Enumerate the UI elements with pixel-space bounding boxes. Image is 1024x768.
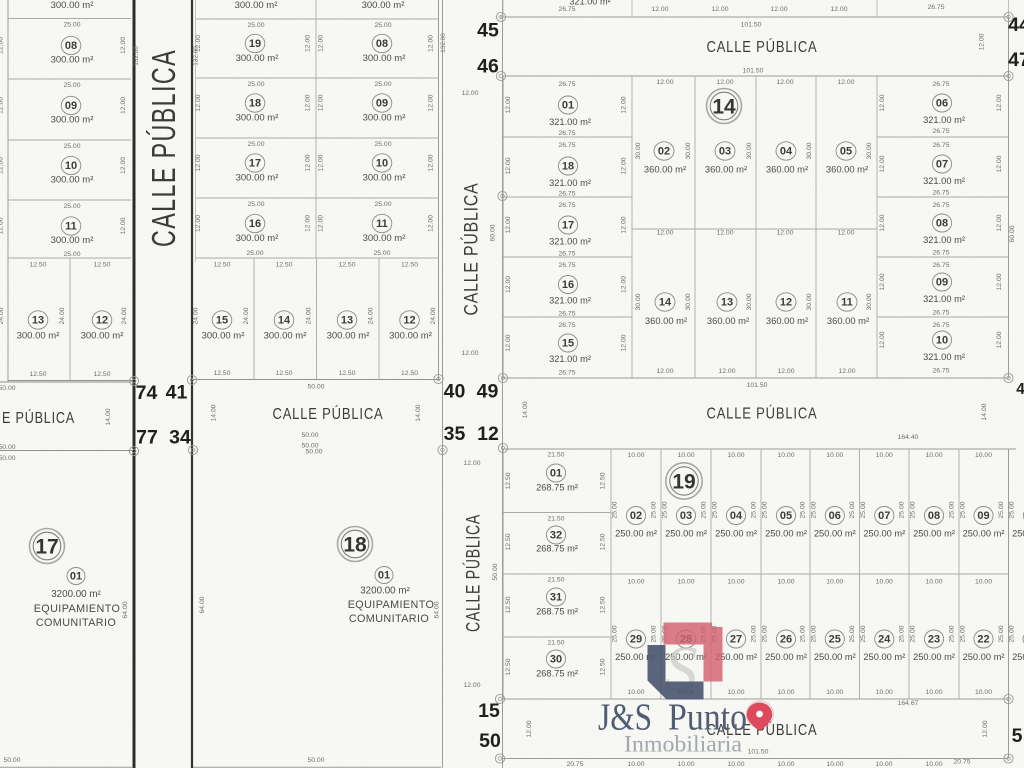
svg-text:22: 22	[977, 634, 989, 646]
svg-text:250.00 m²: 250.00 m²	[814, 652, 856, 662]
svg-text:CALLE PÚBLICA: CALLE PÚBLICA	[707, 37, 818, 56]
svg-text:15: 15	[216, 315, 228, 327]
svg-text:64.00: 64.00	[199, 596, 206, 613]
svg-text:08: 08	[376, 38, 388, 50]
svg-text:60.00: 60.00	[490, 224, 497, 241]
svg-text:06: 06	[936, 98, 948, 110]
svg-text:164.40: 164.40	[898, 434, 919, 441]
svg-text:09: 09	[977, 510, 989, 522]
svg-text:300.00 m²: 300.00 m²	[389, 331, 432, 342]
svg-text:268.75 m²: 268.75 m²	[536, 483, 578, 493]
svg-text:01: 01	[562, 100, 574, 112]
svg-text:40: 40	[444, 381, 466, 403]
svg-text:26.75: 26.75	[558, 142, 575, 149]
svg-text:18: 18	[343, 533, 367, 556]
svg-text:300.00 m²: 300.00 m²	[363, 53, 406, 64]
svg-text:164.67: 164.67	[898, 700, 919, 707]
svg-text:25.00: 25.00	[811, 625, 818, 642]
svg-text:12.00: 12.00	[879, 331, 886, 348]
svg-text:26.75: 26.75	[932, 128, 949, 135]
svg-text:10.00: 10.00	[875, 761, 892, 768]
svg-text:12.50: 12.50	[505, 533, 512, 550]
svg-text:25.00: 25.00	[1009, 625, 1016, 642]
svg-text:300.00 m²: 300.00 m²	[236, 233, 279, 244]
svg-text:25.00: 25.00	[899, 625, 906, 642]
svg-text:25: 25	[829, 634, 841, 646]
svg-text:26.75: 26.75	[932, 202, 949, 209]
svg-text:12.00: 12.00	[996, 155, 1003, 172]
svg-text:12.50: 12.50	[275, 262, 292, 269]
svg-text:12.50: 12.50	[29, 262, 46, 269]
svg-text:16: 16	[562, 279, 574, 291]
svg-text:12.00: 12.00	[711, 6, 728, 13]
svg-text:25.00: 25.00	[960, 501, 967, 518]
svg-text:32: 32	[550, 530, 562, 542]
svg-text:01: 01	[70, 571, 82, 583]
svg-text:12.50: 12.50	[29, 371, 46, 378]
svg-text:300.00 m²: 300.00 m²	[236, 173, 279, 184]
svg-text:24.00: 24.00	[59, 307, 66, 324]
svg-text:30: 30	[550, 654, 562, 666]
svg-text:02: 02	[658, 146, 670, 158]
svg-text:25.00: 25.00	[247, 22, 264, 29]
svg-text:12.00: 12.00	[463, 682, 480, 689]
svg-text:50: 50	[479, 730, 501, 752]
svg-text:10.00: 10.00	[826, 452, 843, 459]
svg-text:24.00: 24.00	[368, 307, 375, 324]
svg-text:26.75: 26.75	[932, 81, 949, 88]
svg-text:12: 12	[477, 423, 499, 445]
svg-text:360.00 m²: 360.00 m²	[766, 315, 808, 326]
svg-text:09: 09	[376, 98, 388, 110]
svg-text:360.00 m²: 360.00 m²	[645, 315, 687, 326]
svg-text:25.00: 25.00	[949, 501, 956, 518]
svg-text:10.00: 10.00	[727, 761, 744, 768]
svg-text:50.00: 50.00	[0, 444, 16, 451]
svg-text:12.00: 12.00	[318, 154, 325, 171]
svg-text:12.00: 12.00	[879, 273, 886, 290]
svg-text:50.00: 50.00	[307, 757, 324, 764]
svg-text:10.00: 10.00	[826, 761, 843, 768]
svg-text:321.00 m²: 321.00 m²	[923, 115, 965, 125]
svg-text:300.00 m²: 300.00 m²	[235, 0, 278, 11]
svg-text:25.00: 25.00	[800, 625, 807, 642]
svg-text:12.50: 12.50	[600, 533, 607, 550]
svg-text:300.00 m²: 300.00 m²	[51, 115, 94, 126]
svg-text:300.00 m²: 300.00 m²	[327, 331, 370, 342]
svg-text:26.75: 26.75	[558, 322, 575, 329]
svg-text:360.00 m²: 360.00 m²	[644, 164, 686, 175]
svg-text:12.00: 12.00	[982, 720, 989, 737]
svg-text:12.00: 12.00	[838, 368, 855, 375]
svg-text:12.00: 12.00	[879, 214, 886, 231]
svg-text:12.00: 12.00	[656, 368, 673, 375]
svg-text:14.00: 14.00	[415, 404, 422, 421]
svg-text:25.00: 25.00	[651, 625, 658, 642]
svg-text:05: 05	[840, 146, 852, 158]
svg-text:250.00 m²: 250.00 m²	[814, 529, 856, 539]
svg-text:25.00: 25.00	[712, 501, 719, 518]
svg-text:50.00: 50.00	[301, 432, 318, 439]
svg-text:10.00: 10.00	[876, 689, 893, 696]
svg-text:12.00: 12.00	[428, 35, 435, 52]
svg-text:12.50: 12.50	[93, 262, 110, 269]
svg-text:12.00: 12.00	[837, 79, 854, 86]
svg-text:25.00: 25.00	[751, 501, 758, 518]
svg-text:12.00: 12.00	[0, 217, 5, 234]
svg-text:30.00: 30.00	[685, 293, 692, 310]
svg-text:12.50: 12.50	[213, 370, 230, 377]
svg-text:12.00: 12.00	[0, 97, 5, 114]
svg-text:25.00: 25.00	[246, 250, 263, 257]
svg-text:03: 03	[680, 510, 692, 522]
svg-text:10.00: 10.00	[677, 761, 694, 768]
svg-text:25.00: 25.00	[849, 501, 856, 518]
svg-text:12.50: 12.50	[600, 472, 607, 489]
svg-text:12.50: 12.50	[401, 262, 418, 269]
svg-text:250.00 m²: 250.00 m²	[863, 529, 905, 539]
svg-text:26.75: 26.75	[558, 191, 575, 198]
svg-text:321.00 m²: 321.00 m²	[923, 176, 965, 186]
svg-text:360.00 m²: 360.00 m²	[827, 315, 869, 326]
svg-text:10.00: 10.00	[777, 761, 794, 768]
svg-text:50.00: 50.00	[307, 384, 324, 391]
svg-text:300.00 m²: 300.00 m²	[362, 0, 405, 11]
svg-text:10.00: 10.00	[627, 452, 644, 459]
svg-text:300.00 m²: 300.00 m²	[17, 331, 60, 342]
svg-text:12.00: 12.00	[428, 154, 435, 171]
svg-text:49: 49	[477, 381, 499, 403]
svg-text:25.00: 25.00	[751, 625, 758, 642]
svg-text:250.00 m²: 250.00 m²	[615, 529, 657, 539]
svg-text:25.00: 25.00	[998, 625, 1005, 642]
svg-text:01: 01	[550, 468, 562, 480]
svg-text:26.75: 26.75	[932, 262, 949, 269]
svg-text:12.00: 12.00	[461, 350, 478, 357]
svg-text:25.00: 25.00	[247, 201, 264, 208]
svg-text:25.00: 25.00	[662, 501, 669, 518]
svg-text:12.00: 12.00	[505, 216, 512, 233]
svg-text:10: 10	[376, 158, 388, 170]
svg-text:268.75 m²: 268.75 m²	[536, 669, 578, 679]
svg-text:50.00: 50.00	[0, 385, 16, 392]
svg-text:250.00 m²: 250.00 m²	[963, 652, 1005, 662]
svg-text:29: 29	[630, 634, 642, 646]
svg-text:10.00: 10.00	[727, 452, 744, 459]
svg-text:21.50: 21.50	[547, 516, 564, 523]
svg-text:41: 41	[166, 382, 188, 404]
svg-text:10.00: 10.00	[925, 452, 942, 459]
svg-text:14.00: 14.00	[105, 408, 112, 425]
svg-text:25.00: 25.00	[811, 501, 818, 518]
svg-text:25.00: 25.00	[860, 501, 867, 518]
svg-text:12.00: 12.00	[120, 37, 127, 54]
svg-text:4: 4	[1016, 381, 1024, 398]
svg-text:10.00: 10.00	[975, 689, 992, 696]
svg-text:300.00 m²: 300.00 m²	[51, 235, 94, 246]
svg-text:Inmobiliaria: Inmobiliaria	[624, 732, 742, 757]
svg-text:26.75: 26.75	[558, 311, 575, 318]
svg-text:321.00 m²: 321.00 m²	[923, 235, 965, 245]
svg-text:25.00: 25.00	[949, 625, 956, 642]
svg-text:20.75: 20.75	[953, 759, 970, 766]
svg-text:12.00: 12.00	[318, 215, 325, 232]
svg-text:26.75: 26.75	[932, 142, 949, 149]
svg-text:360.00 m²: 360.00 m²	[826, 164, 868, 175]
svg-text:25.00: 25.00	[247, 81, 264, 88]
svg-text:26.75: 26.75	[932, 250, 949, 257]
svg-text:250.00 m²: 250.00 m²	[913, 652, 955, 662]
svg-text:CALLE PÚBLICA: CALLE PÚBLICA	[707, 404, 818, 423]
svg-text:26.75: 26.75	[932, 322, 949, 329]
svg-text:12.50: 12.50	[93, 371, 110, 378]
svg-text:10.00: 10.00	[975, 452, 992, 459]
svg-text:12.50: 12.50	[505, 596, 512, 613]
svg-text:25.00: 25.00	[998, 501, 1005, 518]
svg-text:12.00: 12.00	[621, 216, 628, 233]
svg-text:321.00 m²: 321.00 m²	[923, 352, 965, 362]
svg-text:25.00: 25.00	[374, 81, 391, 88]
svg-text:18: 18	[249, 98, 261, 110]
svg-text:300.00 m²: 300.00 m²	[51, 55, 94, 66]
svg-text:30.00: 30.00	[635, 293, 642, 310]
svg-text:07: 07	[936, 159, 948, 171]
svg-text:12.00: 12.00	[0, 157, 5, 174]
svg-text:250.00 m²: 250.00 m²	[863, 652, 905, 662]
svg-text:321.00 m²: 321.00 m²	[549, 178, 591, 188]
svg-text:50.00: 50.00	[0, 455, 16, 462]
svg-text:04: 04	[730, 510, 743, 522]
svg-text:07: 07	[878, 510, 890, 522]
svg-text:25.00: 25.00	[612, 625, 619, 642]
svg-text:30.00: 30.00	[806, 293, 813, 310]
svg-text:11: 11	[65, 221, 77, 233]
svg-text:12.00: 12.00	[195, 35, 202, 52]
svg-text:250.00 m²: 250.00 m²	[765, 652, 807, 662]
svg-text:268.75 m²: 268.75 m²	[536, 544, 578, 554]
svg-text:12.50: 12.50	[600, 596, 607, 613]
svg-text:12.00: 12.00	[656, 79, 673, 86]
svg-text:30.00: 30.00	[806, 142, 813, 159]
svg-text:25.00: 25.00	[762, 625, 769, 642]
svg-text:5: 5	[1012, 725, 1023, 747]
svg-text:250.00 m²: 250.00 m²	[665, 529, 707, 539]
svg-text:13: 13	[721, 297, 733, 309]
svg-text:101.50: 101.50	[743, 68, 764, 75]
svg-text:12.50: 12.50	[338, 262, 355, 269]
svg-text:47: 47	[1008, 49, 1024, 71]
svg-text:300.00 m²: 300.00 m²	[51, 175, 94, 186]
svg-text:50.00: 50.00	[3, 757, 20, 764]
svg-text:12.00: 12.00	[776, 79, 793, 86]
svg-text:26.75: 26.75	[558, 6, 575, 13]
svg-text:24.00: 24.00	[121, 307, 128, 324]
svg-text:12.00: 12.00	[505, 334, 512, 351]
svg-text:64.00: 64.00	[434, 601, 441, 618]
svg-text:12.00: 12.00	[837, 230, 854, 237]
svg-text:360.00 m²: 360.00 m²	[705, 164, 747, 175]
svg-text:3200.00 m²: 3200.00 m²	[51, 589, 101, 600]
svg-text:250.00 m²: 250.00 m²	[963, 529, 1005, 539]
svg-text:300.00 m²: 300.00 m²	[363, 233, 406, 244]
svg-text:02: 02	[630, 510, 642, 522]
svg-text:EQUIPAMIENTO: EQUIPAMIENTO	[348, 599, 435, 611]
svg-text:25.00: 25.00	[374, 141, 391, 148]
svg-text:10.00: 10.00	[826, 689, 843, 696]
svg-text:3200.00 m²: 3200.00 m²	[360, 586, 410, 597]
svg-text:26.75: 26.75	[558, 262, 575, 269]
svg-text:12.00: 12.00	[305, 154, 312, 171]
svg-text:12.00: 12.00	[195, 215, 202, 232]
svg-text:24.00: 24.00	[0, 307, 5, 324]
svg-text:250.00 m²: 250.00 m²	[765, 529, 807, 539]
svg-text:10.00: 10.00	[876, 579, 893, 586]
svg-text:25.00: 25.00	[1009, 501, 1016, 518]
svg-text:12.00: 12.00	[120, 157, 127, 174]
svg-text:26.75: 26.75	[927, 4, 944, 11]
svg-text:30.00: 30.00	[866, 293, 873, 310]
svg-text:11: 11	[376, 218, 388, 230]
svg-text:17: 17	[35, 535, 58, 558]
svg-text:360.00 m²: 360.00 m²	[707, 315, 749, 326]
svg-text:10.00: 10.00	[777, 452, 794, 459]
svg-text:25.00: 25.00	[374, 201, 391, 208]
svg-text:64.00: 64.00	[122, 601, 129, 618]
svg-text:250.00 m²: 250.00 m²	[1012, 529, 1024, 539]
svg-text:26.75: 26.75	[932, 368, 949, 375]
svg-text:26.75: 26.75	[932, 190, 949, 197]
svg-text:10.00: 10.00	[876, 452, 893, 459]
svg-text:300.00 m²: 300.00 m²	[51, 0, 94, 11]
svg-text:15: 15	[562, 338, 574, 350]
svg-text:50.00: 50.00	[305, 449, 322, 456]
svg-text:10.00: 10.00	[777, 579, 794, 586]
svg-text:16: 16	[249, 218, 261, 230]
svg-text:25.00: 25.00	[63, 143, 80, 150]
svg-text:25.00: 25.00	[762, 501, 769, 518]
svg-text:10.00: 10.00	[925, 761, 942, 768]
svg-text:25.00: 25.00	[63, 22, 80, 29]
svg-text:21.50: 21.50	[547, 452, 564, 459]
svg-text:34: 34	[169, 427, 191, 449]
svg-text:321.00 m²: 321.00 m²	[549, 354, 591, 364]
svg-text:12.00: 12.00	[0, 37, 5, 54]
svg-text:14.00: 14.00	[211, 404, 218, 421]
svg-text:CALLE PÚBLICA: CALLE PÚBLICA	[463, 514, 485, 632]
svg-text:12.00: 12.00	[879, 94, 886, 111]
svg-text:12.50: 12.50	[401, 370, 418, 377]
svg-text:27: 27	[730, 634, 742, 646]
svg-text:12.00: 12.00	[305, 35, 312, 52]
svg-text:12.00: 12.00	[777, 368, 794, 375]
svg-text:12.00: 12.00	[621, 157, 628, 174]
svg-text:101.50: 101.50	[748, 749, 769, 756]
svg-text:12.00: 12.00	[621, 276, 628, 293]
svg-text:12.00: 12.00	[716, 230, 733, 237]
svg-text:12.00: 12.00	[770, 6, 787, 13]
svg-text:12.00: 12.00	[318, 35, 325, 52]
svg-text:10.00: 10.00	[677, 579, 694, 586]
svg-text:18: 18	[562, 161, 574, 173]
svg-text:12.50: 12.50	[505, 658, 512, 675]
svg-text:12.00: 12.00	[195, 94, 202, 111]
svg-text:26.75: 26.75	[558, 251, 575, 258]
svg-text:12.00: 12.00	[996, 331, 1003, 348]
svg-text:12.00: 12.00	[830, 6, 847, 13]
svg-text:14: 14	[278, 315, 291, 327]
svg-text:12.50: 12.50	[338, 370, 355, 377]
svg-text:300.00 m²: 300.00 m²	[202, 331, 245, 342]
svg-text:26.75: 26.75	[558, 130, 575, 137]
svg-text:12.00: 12.00	[461, 90, 478, 97]
svg-text:25.00: 25.00	[910, 625, 917, 642]
svg-text:30.00: 30.00	[685, 142, 692, 159]
svg-text:12.00: 12.00	[195, 154, 202, 171]
svg-text:20.75: 20.75	[566, 761, 583, 768]
svg-text:25.00: 25.00	[63, 251, 80, 258]
svg-text:24.00: 24.00	[193, 307, 200, 324]
svg-text:12: 12	[403, 315, 415, 327]
svg-text:101.50: 101.50	[747, 382, 768, 389]
svg-text:12.00: 12.00	[318, 94, 325, 111]
svg-text:12.50: 12.50	[600, 658, 607, 675]
svg-text:321.00 m²: 321.00 m²	[549, 117, 591, 127]
svg-text:25.00: 25.00	[651, 501, 658, 518]
svg-text:24.00: 24.00	[243, 307, 250, 324]
svg-text:08: 08	[936, 218, 948, 230]
svg-text:250.00 m²: 250.00 m²	[715, 529, 757, 539]
svg-text:21.50: 21.50	[547, 577, 564, 584]
svg-text:12.00: 12.00	[996, 273, 1003, 290]
svg-text:08: 08	[65, 40, 77, 52]
svg-text:10.00: 10.00	[727, 689, 744, 696]
svg-text:25.00: 25.00	[63, 203, 80, 210]
svg-text:25.00: 25.00	[800, 501, 807, 518]
svg-text:09: 09	[65, 100, 77, 112]
svg-text:CALLE PÚBLICA: CALLE PÚBLICA	[273, 404, 384, 423]
svg-text:24: 24	[878, 634, 891, 646]
svg-text:101.50: 101.50	[741, 22, 762, 29]
svg-text:25.00: 25.00	[960, 625, 967, 642]
svg-text:321.00 m²: 321.00 m²	[549, 237, 591, 247]
svg-text:12.00: 12.00	[428, 215, 435, 232]
svg-text:19: 19	[249, 38, 261, 50]
svg-text:12.00: 12.00	[505, 157, 512, 174]
svg-text:12.00: 12.00	[996, 214, 1003, 231]
svg-text:10.00: 10.00	[975, 579, 992, 586]
svg-text:12.00: 12.00	[621, 334, 628, 351]
svg-text:300.00 m²: 300.00 m²	[236, 53, 279, 64]
svg-text:77: 77	[136, 427, 158, 449]
svg-text:30.00: 30.00	[746, 142, 753, 159]
svg-text:24.00: 24.00	[430, 307, 437, 324]
svg-text:25.00: 25.00	[247, 141, 264, 148]
svg-text:25.00: 25.00	[849, 625, 856, 642]
svg-text:12.00: 12.00	[463, 460, 480, 467]
svg-text:10: 10	[65, 160, 77, 172]
svg-text:25.00: 25.00	[374, 22, 391, 29]
svg-text:12.00: 12.00	[526, 720, 533, 737]
svg-text:60.00: 60.00	[1009, 225, 1016, 242]
svg-text:24.00: 24.00	[306, 307, 313, 324]
svg-text:12.50: 12.50	[275, 370, 292, 377]
svg-text:12.00: 12.00	[879, 155, 886, 172]
svg-text:300.00 m²: 300.00 m²	[236, 113, 279, 124]
svg-text:12.50: 12.50	[505, 472, 512, 489]
svg-text:09: 09	[936, 277, 948, 289]
svg-text:25.00: 25.00	[63, 82, 80, 89]
svg-text:12.00: 12.00	[776, 230, 793, 237]
